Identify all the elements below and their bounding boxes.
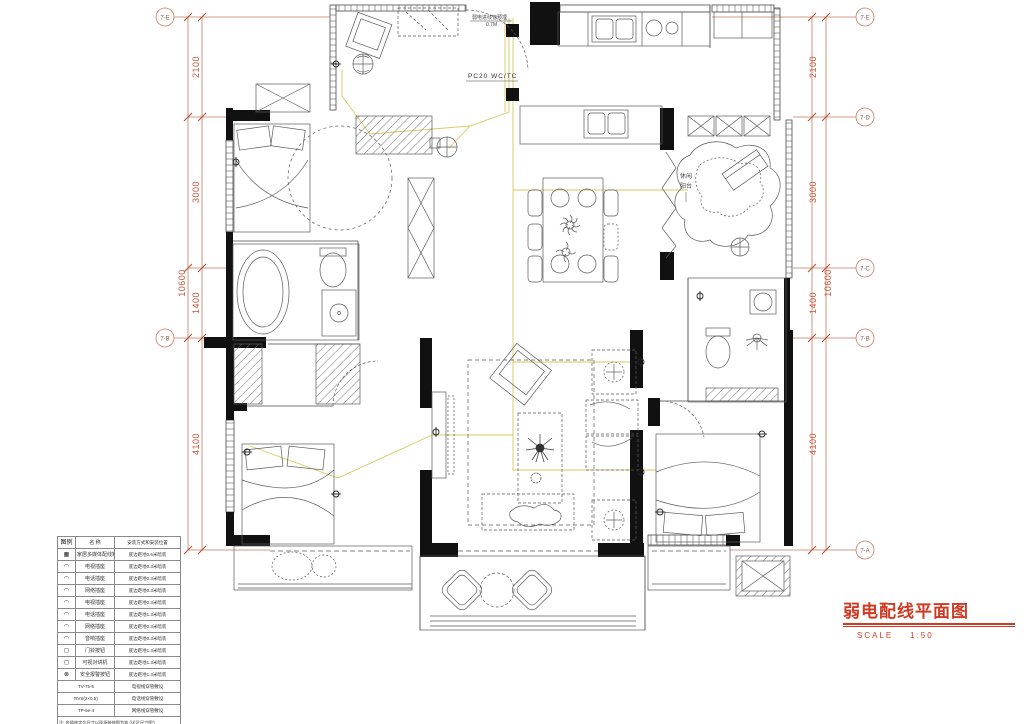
dim-value: 4100 bbox=[808, 433, 818, 455]
legend-row: ◠电视插座底边距地0.3米暗装 bbox=[58, 561, 181, 573]
outlet-icon: ◠ bbox=[58, 633, 76, 645]
dim-value: 2100 bbox=[191, 56, 201, 78]
study-desk bbox=[398, 8, 458, 36]
leisure-balcony-label-2: 阳台 bbox=[680, 182, 692, 190]
legend-name: 电话插座 bbox=[76, 609, 115, 621]
bedroom-small bbox=[234, 116, 432, 232]
cable-desc: 网络线穿管敷设 bbox=[115, 705, 181, 717]
balcony-center bbox=[420, 551, 645, 630]
basin bbox=[754, 293, 772, 311]
axis-label: 7-B bbox=[160, 337, 169, 343]
outlet-icon: ◠ bbox=[58, 609, 76, 621]
legend-header-name: 名 称 bbox=[76, 537, 115, 549]
cable-code: TP-5e-4 bbox=[58, 705, 115, 717]
entry-note-2: 0.7M bbox=[486, 22, 497, 28]
legend-install: 底边距地0.3米暗装 bbox=[115, 597, 181, 609]
cable-code: RVS(2×0.5) bbox=[58, 693, 115, 705]
kitchen-sink bbox=[592, 16, 636, 42]
dim-value: 1400 bbox=[191, 292, 201, 314]
bench bbox=[482, 494, 574, 530]
wardrobe bbox=[316, 344, 360, 404]
outlet-icon bbox=[757, 431, 767, 437]
rug bbox=[468, 360, 594, 525]
legend-name: 电视插座 bbox=[76, 561, 115, 573]
floorplan-page: 7-E 7-B 7-E 7-D 7-C 7-B 7-A 2100 3000 14… bbox=[0, 0, 1024, 724]
legend-name: 可视对讲机 bbox=[76, 657, 115, 669]
annotation-layer: 弱电进线管预埋 0.7M PC20 WC/TC 休闲 阳台 bbox=[466, 14, 692, 202]
leisure-balcony-label: 休闲 bbox=[680, 172, 692, 180]
legend-install: 底边距地0.3米暗装 bbox=[115, 633, 181, 645]
bedroom-left bbox=[242, 444, 334, 544]
title-block: 弱电配线平面图 SCALE 1:50 bbox=[843, 597, 1015, 640]
axis-label: 7-B bbox=[860, 337, 869, 343]
plant bbox=[312, 555, 336, 577]
balcony-chair bbox=[509, 567, 554, 612]
axis-label: 7-E bbox=[160, 16, 169, 22]
bathtub bbox=[237, 250, 289, 334]
outlet-symbols-layer bbox=[233, 61, 767, 515]
dim-value-overall: 10600 bbox=[177, 269, 187, 297]
legend-header-install: 安装方式和安装位置 bbox=[115, 537, 181, 549]
outlet-icon: ◠ bbox=[58, 621, 76, 633]
dim-value: 1400 bbox=[808, 292, 818, 314]
legend-install: 底边距地1.3米暗装 bbox=[115, 645, 181, 657]
legend-header-symbol: 图例 bbox=[58, 537, 76, 549]
legend-name: 网络插座 bbox=[76, 621, 115, 633]
kitchen-island bbox=[520, 106, 662, 144]
dim-value: 4100 bbox=[191, 433, 201, 455]
legend-row: ◠电话插座底边距地1.3米暗装 bbox=[58, 609, 181, 621]
ceiling-fan-icon bbox=[731, 238, 749, 256]
weak-current-wiring-layer bbox=[250, 18, 688, 478]
legend-install: 底边距地0.3米暗装 bbox=[115, 561, 181, 573]
legend-name: 电视插座 bbox=[76, 597, 115, 609]
toilet bbox=[320, 253, 346, 287]
folding-door bbox=[662, 152, 676, 258]
outlet-icon bbox=[655, 509, 665, 515]
outlet-icon: ◠ bbox=[58, 585, 76, 597]
stove-burner bbox=[646, 20, 662, 36]
wardrobe bbox=[706, 388, 778, 401]
axis-label: 7-A bbox=[860, 549, 869, 555]
plant bbox=[526, 434, 554, 483]
alarm-icon: ⊗ bbox=[58, 669, 76, 681]
cable-desc: 电话线穿管敷设 bbox=[115, 693, 181, 705]
study-armchair bbox=[346, 12, 392, 58]
toilet bbox=[706, 336, 730, 368]
scale-label: SCALE bbox=[857, 631, 893, 640]
rock-garden bbox=[675, 142, 780, 247]
axis-label: 7-C bbox=[860, 267, 870, 273]
legend-name: 家居多媒体配线箱 bbox=[76, 549, 115, 561]
outlet-icon: ◠ bbox=[58, 573, 76, 585]
wardrobe bbox=[234, 344, 262, 404]
intercom-icon: ◻ bbox=[58, 657, 76, 669]
tall-cabinet bbox=[408, 178, 434, 278]
legend-name: 安全报警按钮 bbox=[76, 669, 115, 681]
shower-icon bbox=[746, 334, 768, 350]
legend-row: ◠电视插座底边距地0.3米暗装 bbox=[58, 597, 181, 609]
dim-value: 3000 bbox=[808, 181, 818, 203]
junction-box-icon bbox=[430, 137, 457, 157]
legend-name: 网络插座 bbox=[76, 585, 115, 597]
legend-row: ◠电话插座底边距地0.3米暗装 bbox=[58, 573, 181, 585]
outlet-icon bbox=[331, 491, 341, 497]
legend-install: 底边距地1.3米暗装 bbox=[115, 657, 181, 669]
living-room bbox=[432, 343, 638, 540]
ac-platform bbox=[736, 556, 790, 596]
balcony-table bbox=[480, 573, 514, 607]
dim-value: 2100 bbox=[808, 56, 818, 78]
cable-code: TV-75-5 bbox=[58, 681, 115, 693]
legend-install: 底边距地0.3米暗装 bbox=[115, 573, 181, 585]
legend-row: ⊗安全报警按钮底边距地1.3米暗装 bbox=[58, 669, 181, 681]
legend-name: 音响插座 bbox=[76, 633, 115, 645]
coffee-table bbox=[518, 413, 562, 503]
bedroom-right bbox=[656, 401, 760, 542]
outlet-icon bbox=[433, 427, 439, 437]
legend-table: 图例 名 称 安装方式和安装位置 ▦家居多媒体配线箱底边距地0.5米暗装 ◠电视… bbox=[57, 536, 181, 724]
legend-row: ◻可视对讲机底边距地1.3米暗装 bbox=[58, 657, 181, 669]
legend-cable-row: TP-5e-4网络线穿管敷设 bbox=[58, 705, 181, 717]
cable-desc: 电视线穿管敷设 bbox=[115, 681, 181, 693]
legend-row: ◠音响插座底边距地0.3米暗装 bbox=[58, 633, 181, 645]
riser-label: PC20 WC/TC bbox=[468, 73, 517, 80]
drawing-title: 弱电配线平面图 bbox=[843, 597, 1015, 625]
multimedia-box-icon: ▦ bbox=[58, 549, 76, 561]
legend-header-row: 图例 名 称 安装方式和安装位置 bbox=[58, 537, 181, 549]
legend-cable-row: TV-75-5电视线穿管敷设 bbox=[58, 681, 181, 693]
scale-line: SCALE 1:50 bbox=[843, 631, 1015, 640]
legend-row: ◠网络插座底边距地0.3米暗装 bbox=[58, 621, 181, 633]
multimedia-box-symbol bbox=[506, 88, 519, 101]
vanity bbox=[322, 290, 356, 336]
legend-note-row: 注: 各插座定位尺寸以现场装修图为准 (详见'尺寸图') bbox=[58, 717, 181, 724]
legend-install: 底边距地0.5米暗装 bbox=[115, 549, 181, 561]
title-underline bbox=[843, 626, 1015, 627]
dim-value: 3000 bbox=[191, 181, 201, 203]
balcony-left bbox=[234, 546, 412, 590]
walls-layer bbox=[204, 2, 793, 557]
outlet-icon: ◠ bbox=[58, 561, 76, 573]
dining-table bbox=[528, 178, 618, 282]
legend-name: 电话插座 bbox=[76, 573, 115, 585]
legend-row: ◠网络插座底边距地0.3米暗装 bbox=[58, 585, 181, 597]
plant bbox=[272, 552, 312, 580]
entry-note: 弱电进线管预埋 bbox=[472, 14, 507, 21]
legend-row: ◻门铃按钮底边距地1.3米暗装 bbox=[58, 645, 181, 657]
bathroom-left bbox=[233, 244, 359, 340]
outlet-icon bbox=[697, 291, 703, 301]
legend-install: 底边距地0.3米暗装 bbox=[115, 621, 181, 633]
dim-value-overall: 10600 bbox=[823, 269, 833, 297]
legend-cable-row: RVS(2×0.5)电话线穿管敷设 bbox=[58, 693, 181, 705]
legend-name: 门铃按钮 bbox=[76, 645, 115, 657]
legend-note: 注: 各插座定位尺寸以现场装修图为准 (详见'尺寸图') bbox=[58, 717, 181, 724]
flue-shaft bbox=[256, 84, 310, 112]
legend-install: 底边距地0.3米暗装 bbox=[115, 585, 181, 597]
legend-install: 底边距地1.3米暗装 bbox=[115, 609, 181, 621]
door-swing bbox=[660, 401, 704, 437]
legend-install: 底边距地1.3米暗装 bbox=[115, 669, 181, 681]
balcony-chair bbox=[439, 567, 484, 612]
legend-row: ▦家居多媒体配线箱底边距地0.5米暗装 bbox=[58, 549, 181, 561]
outlet-icon: ◠ bbox=[58, 597, 76, 609]
balcony-right bbox=[648, 546, 730, 590]
wardrobe bbox=[356, 116, 432, 154]
axis-label: 7-E bbox=[860, 16, 869, 22]
scale-value: 1:50 bbox=[910, 631, 934, 640]
ceiling-fan-icon bbox=[353, 54, 373, 74]
axis-label: 7-D bbox=[860, 116, 870, 122]
doorbell-icon: ◻ bbox=[58, 645, 76, 657]
